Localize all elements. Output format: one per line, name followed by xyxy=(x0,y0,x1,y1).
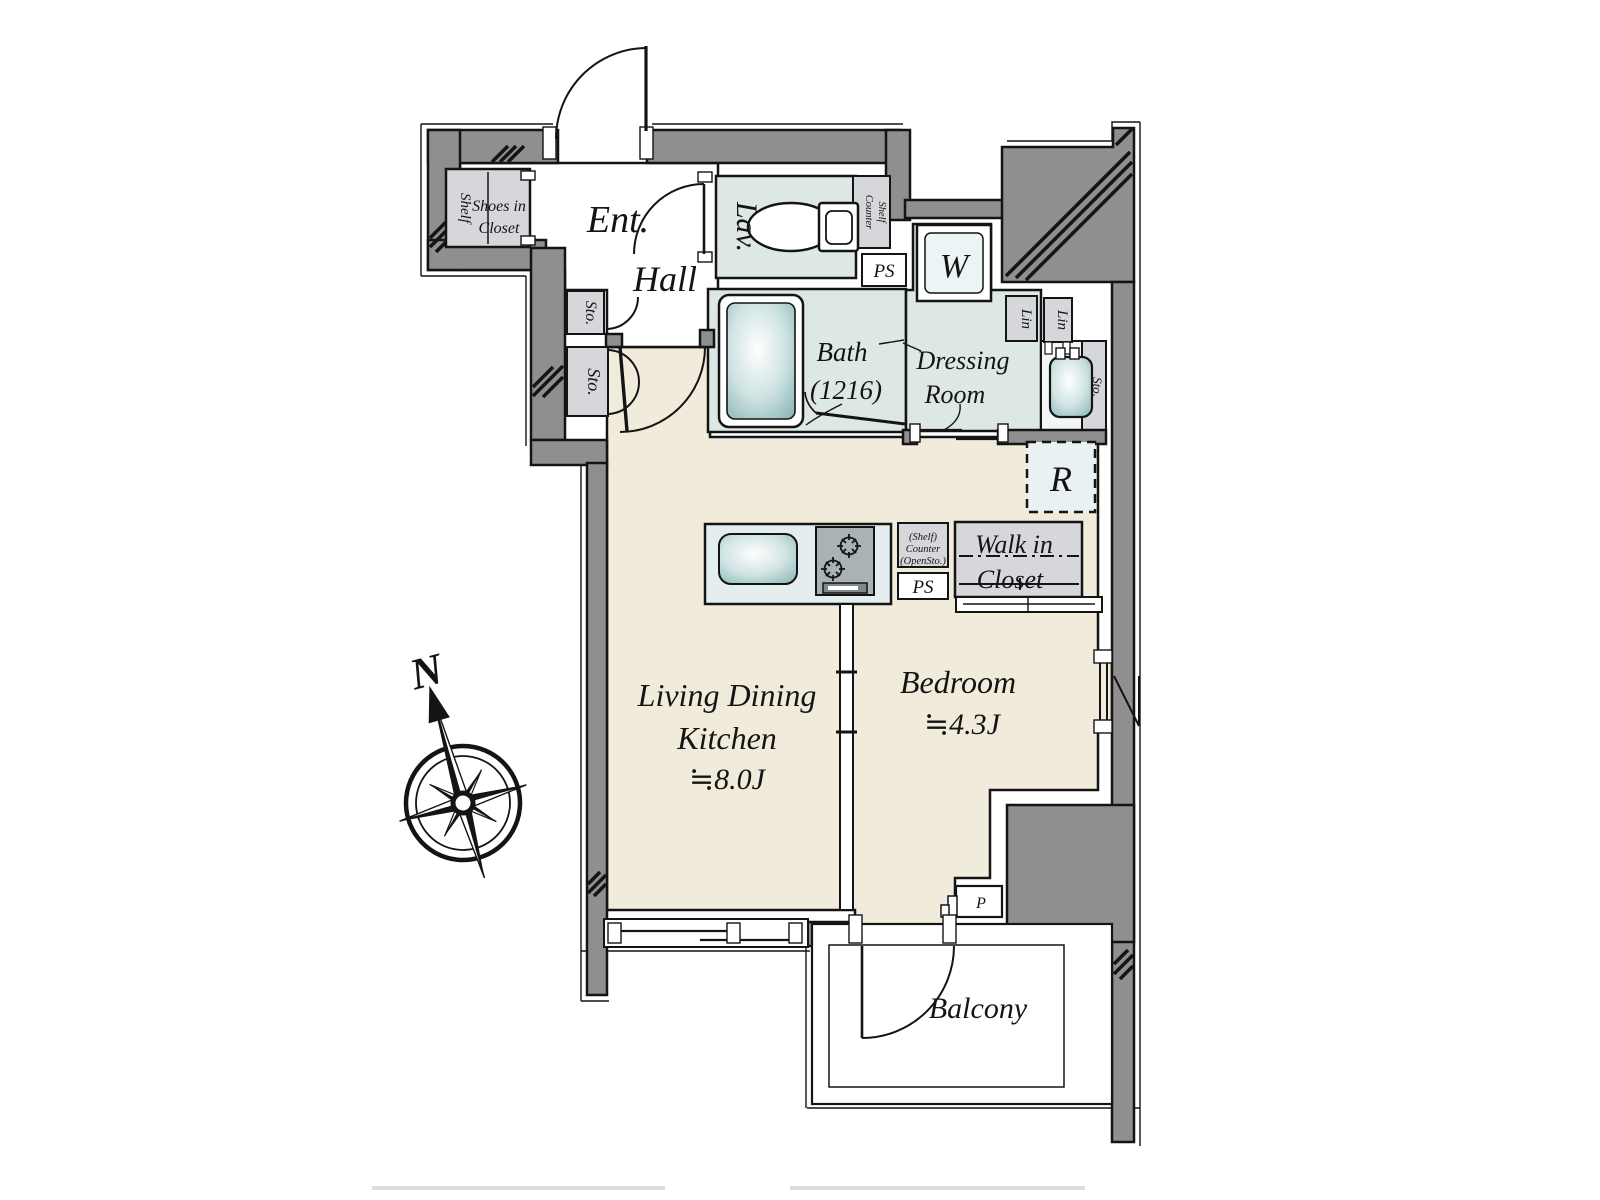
kitchen xyxy=(705,524,891,604)
label-storage-hall: Sto. xyxy=(582,301,599,325)
entrance-door xyxy=(543,46,653,159)
label-bath-2: (1216) xyxy=(810,375,882,405)
label-dressing-2: Room xyxy=(924,380,986,409)
toilet-tank-inner xyxy=(826,211,852,244)
label-pipe: P xyxy=(975,895,986,912)
floorplan-canvas: Ent. Hall Lav. Bath (1216) Dressing Room… xyxy=(0,0,1600,1200)
floorplan-svg: Ent. Hall Lav. Bath (1216) Dressing Room… xyxy=(0,0,1600,1200)
compass-rose xyxy=(366,668,548,897)
label-storage-ldk: Sto. xyxy=(584,368,604,396)
label-shoes-2: Closet xyxy=(479,220,520,237)
label-dressing-1: Dressing xyxy=(916,346,1010,375)
bathtub-inner xyxy=(727,303,795,419)
label-open-counter-3: (OpenSto.) xyxy=(900,556,946,567)
label-open-counter-1: (Shelf) xyxy=(909,532,937,543)
label-bedroom-size: ≒4.3J xyxy=(924,708,1002,741)
label-refrigerator: R xyxy=(1049,459,1072,499)
label-ldk-2: Kitchen xyxy=(676,720,777,756)
label-storage-basin: Sto. xyxy=(1090,377,1105,397)
label-hall: Hall xyxy=(632,259,697,299)
label-shoes-shelf: Shelf xyxy=(457,193,473,225)
label-linen2: Lin xyxy=(1054,309,1070,330)
label-balcony: Balcony xyxy=(929,992,1028,1025)
kitchen-sink xyxy=(719,534,797,584)
label-ps-kitchen: PS xyxy=(911,577,934,598)
label-wic-1: Walk in xyxy=(975,530,1053,559)
label-open-counter-2: Counter xyxy=(906,544,941,555)
label-counter-shelf-1: Counter xyxy=(863,195,874,230)
label-ldk-size: ≒8.0J xyxy=(689,763,767,796)
label-counter-shelf-2: Shelf xyxy=(876,202,887,225)
label-ps-top: PS xyxy=(872,261,895,282)
washbasin-faucet xyxy=(1056,348,1065,359)
label-wic-2: Closet xyxy=(977,565,1044,594)
label-ldk-1: Living Dining xyxy=(637,677,817,713)
label-lavatory: Lav. xyxy=(730,201,763,252)
label-shoes-1: Shoes in xyxy=(472,198,526,215)
room-divider xyxy=(836,604,857,910)
washbasin xyxy=(1050,357,1092,417)
bottom-rule-lines xyxy=(372,1186,1085,1190)
label-linen1: Lin xyxy=(1018,308,1034,329)
label-bedroom: Bedroom xyxy=(900,664,1016,700)
label-entrance: Ent. xyxy=(586,199,649,241)
label-compass-north: N xyxy=(404,643,450,699)
label-bath-1: Bath xyxy=(817,337,868,367)
label-washer: W xyxy=(940,248,971,285)
